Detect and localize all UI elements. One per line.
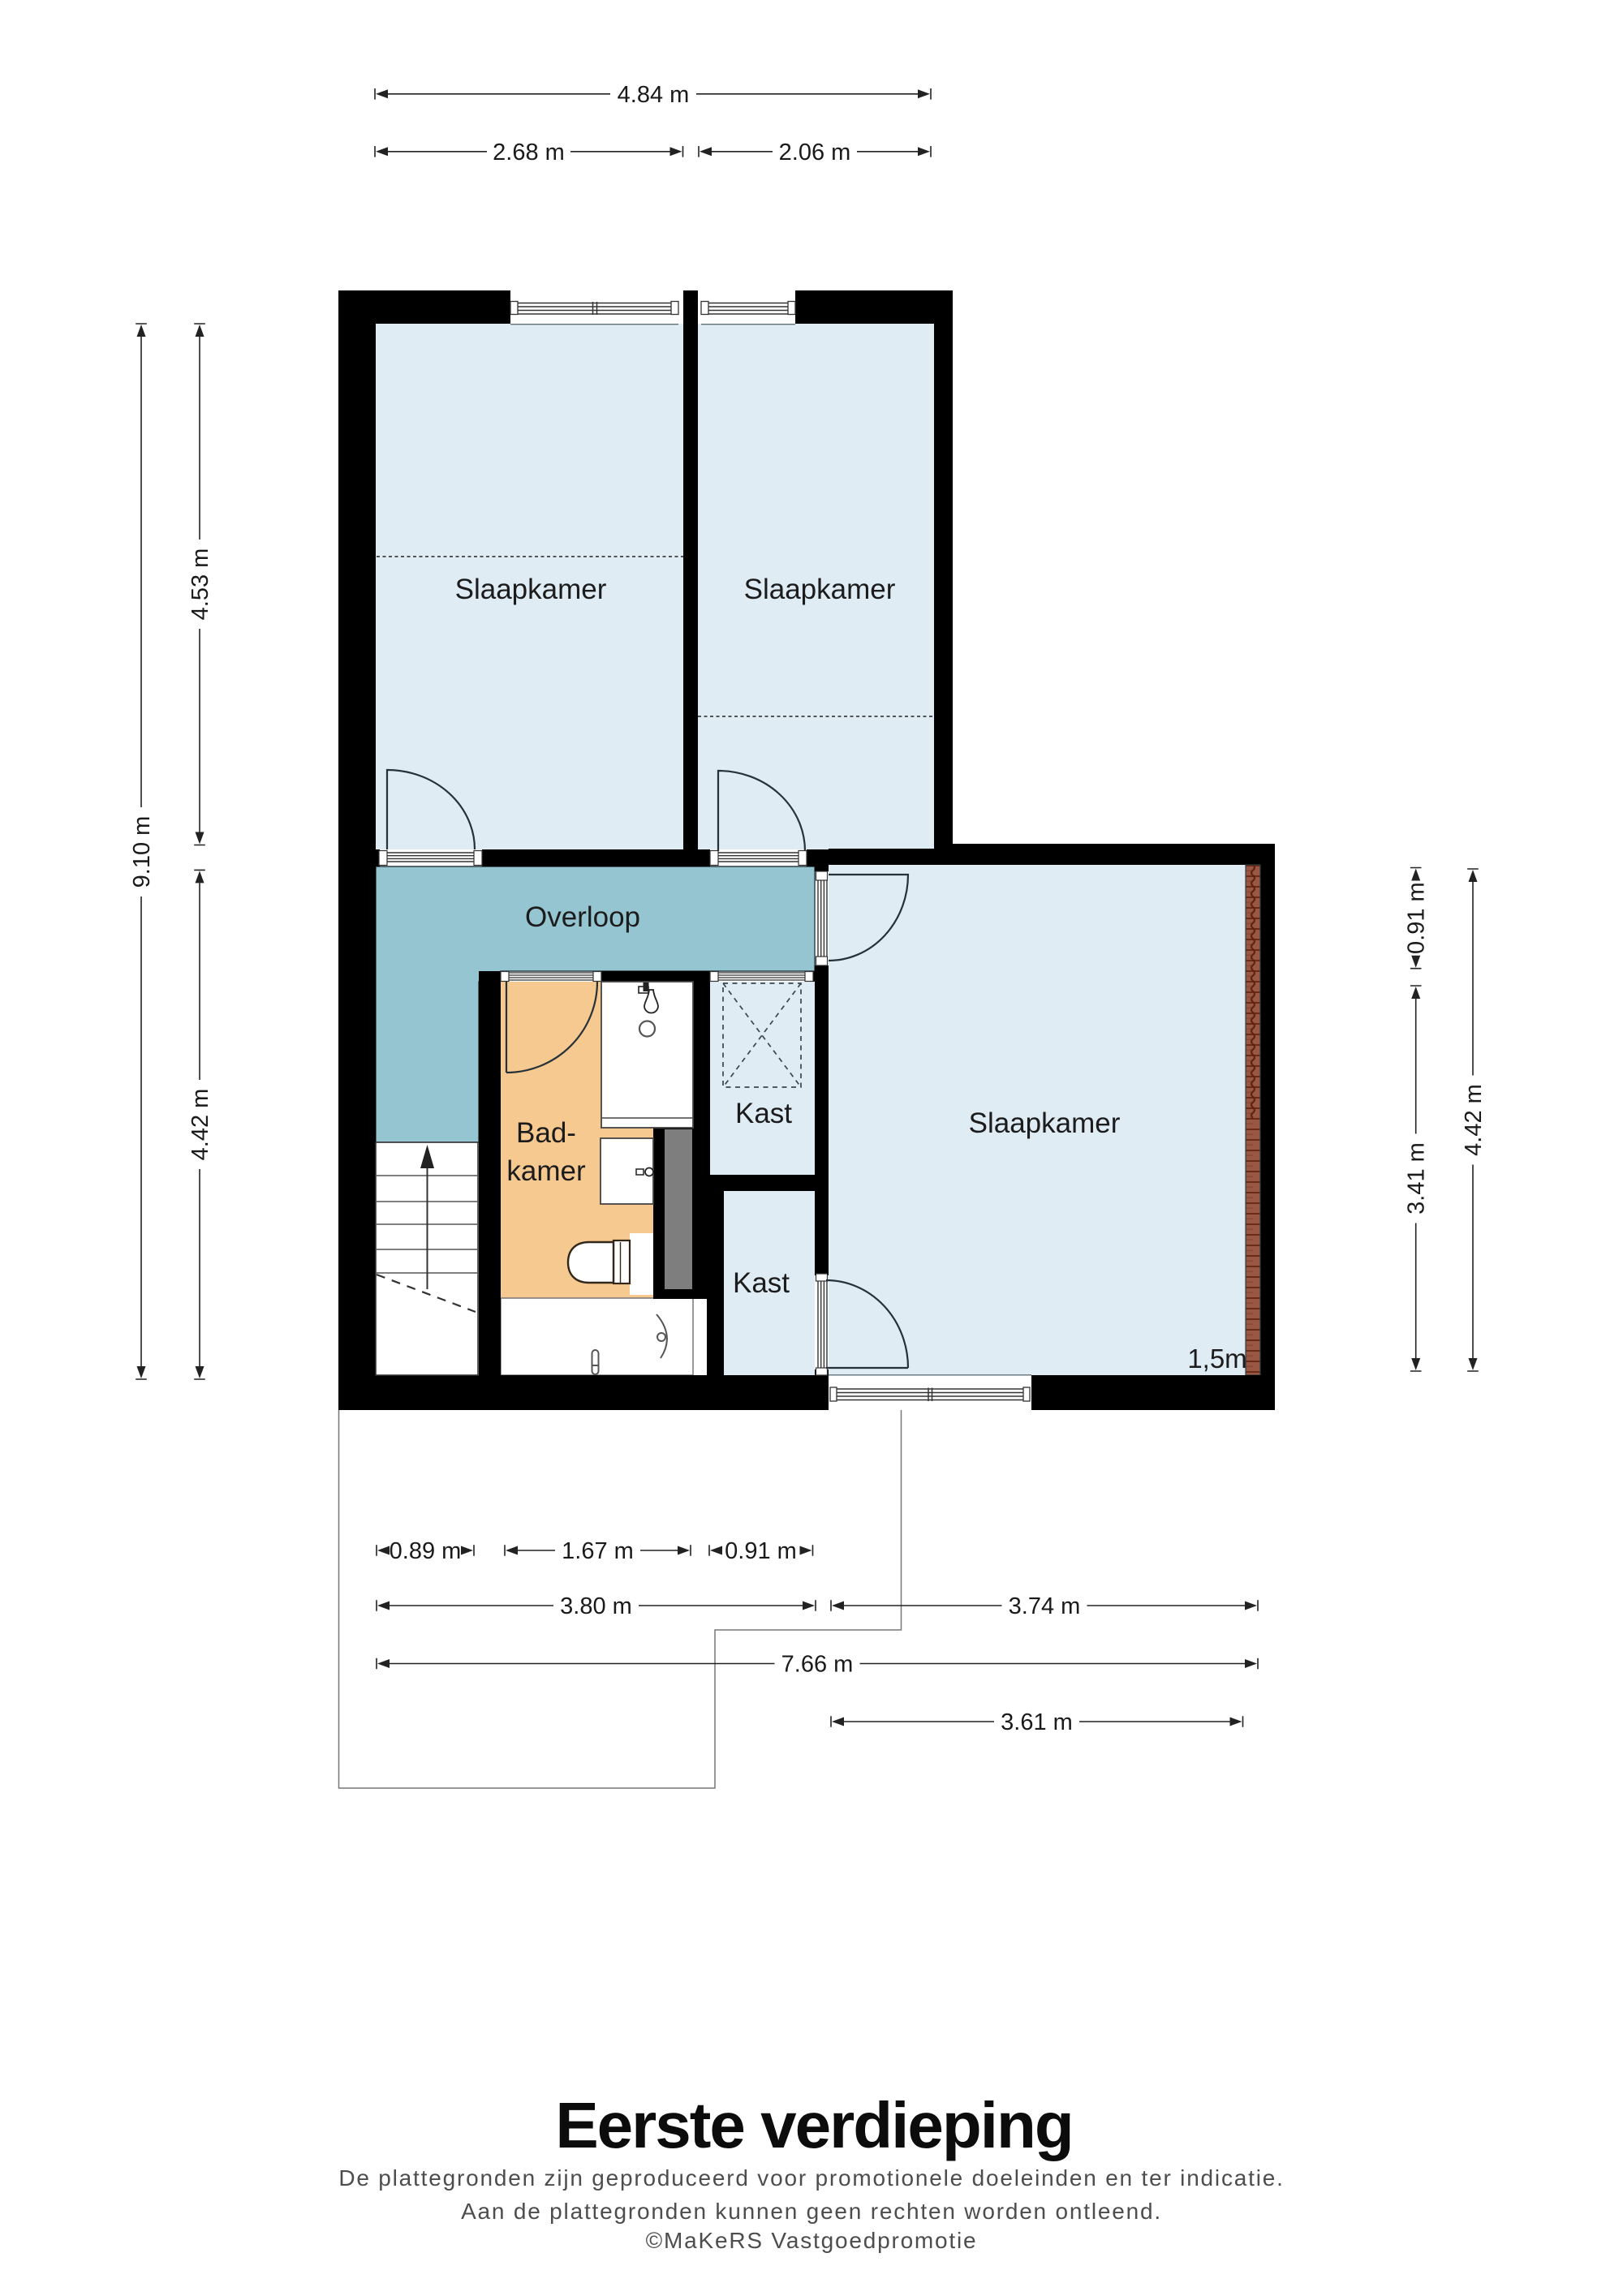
svg-text:Slaapkamer: Slaapkamer — [969, 1107, 1121, 1139]
svg-text:De plattegronden zijn geproduc: De plattegronden zijn geproduceerd voor … — [338, 2165, 1284, 2191]
svg-text:0.89 m: 0.89 m — [390, 1538, 462, 1564]
svg-text:Aan de plattegronden kunnen ge: Aan de plattegronden kunnen geen rechten… — [461, 2199, 1162, 2224]
svg-text:1.67 m: 1.67 m — [562, 1538, 634, 1564]
svg-text:4.42 m: 4.42 m — [1461, 1084, 1487, 1156]
svg-text:Bad-: Bad- — [516, 1117, 576, 1149]
svg-text:2.68 m: 2.68 m — [493, 140, 565, 166]
svg-text:Slaapkamer: Slaapkamer — [455, 574, 607, 605]
svg-text:Overloop: Overloop — [525, 901, 640, 933]
svg-text:3.41 m: 3.41 m — [1404, 1142, 1430, 1215]
svg-text:3.80 m: 3.80 m — [560, 1593, 632, 1619]
svg-text:Slaapkamer: Slaapkamer — [744, 574, 896, 605]
svg-text:2.06 m: 2.06 m — [779, 140, 851, 166]
svg-text:9.10 m: 9.10 m — [129, 816, 155, 888]
svg-text:1,5m: 1,5m — [1187, 1344, 1246, 1374]
svg-text:©MaKeRS Vastgoedpromotie: ©MaKeRS Vastgoedpromotie — [646, 2228, 978, 2253]
svg-text:3.74 m: 3.74 m — [1009, 1593, 1081, 1619]
svg-text:3.61 m: 3.61 m — [1001, 1709, 1073, 1735]
svg-text:Eerste verdieping: Eerste verdieping — [555, 2089, 1072, 2161]
svg-text:kamer: kamer — [506, 1155, 586, 1187]
svg-text:0.91 m: 0.91 m — [725, 1538, 797, 1564]
svg-text:4.42 m: 4.42 m — [187, 1089, 213, 1161]
svg-text:4.53 m: 4.53 m — [187, 548, 213, 621]
svg-text:Kast: Kast — [733, 1267, 790, 1299]
svg-text:4.84 m: 4.84 m — [618, 82, 690, 108]
svg-text:0.91 m: 0.91 m — [1404, 882, 1430, 954]
svg-text:Kast: Kast — [735, 1098, 792, 1129]
svg-text:7.66 m: 7.66 m — [781, 1652, 854, 1678]
